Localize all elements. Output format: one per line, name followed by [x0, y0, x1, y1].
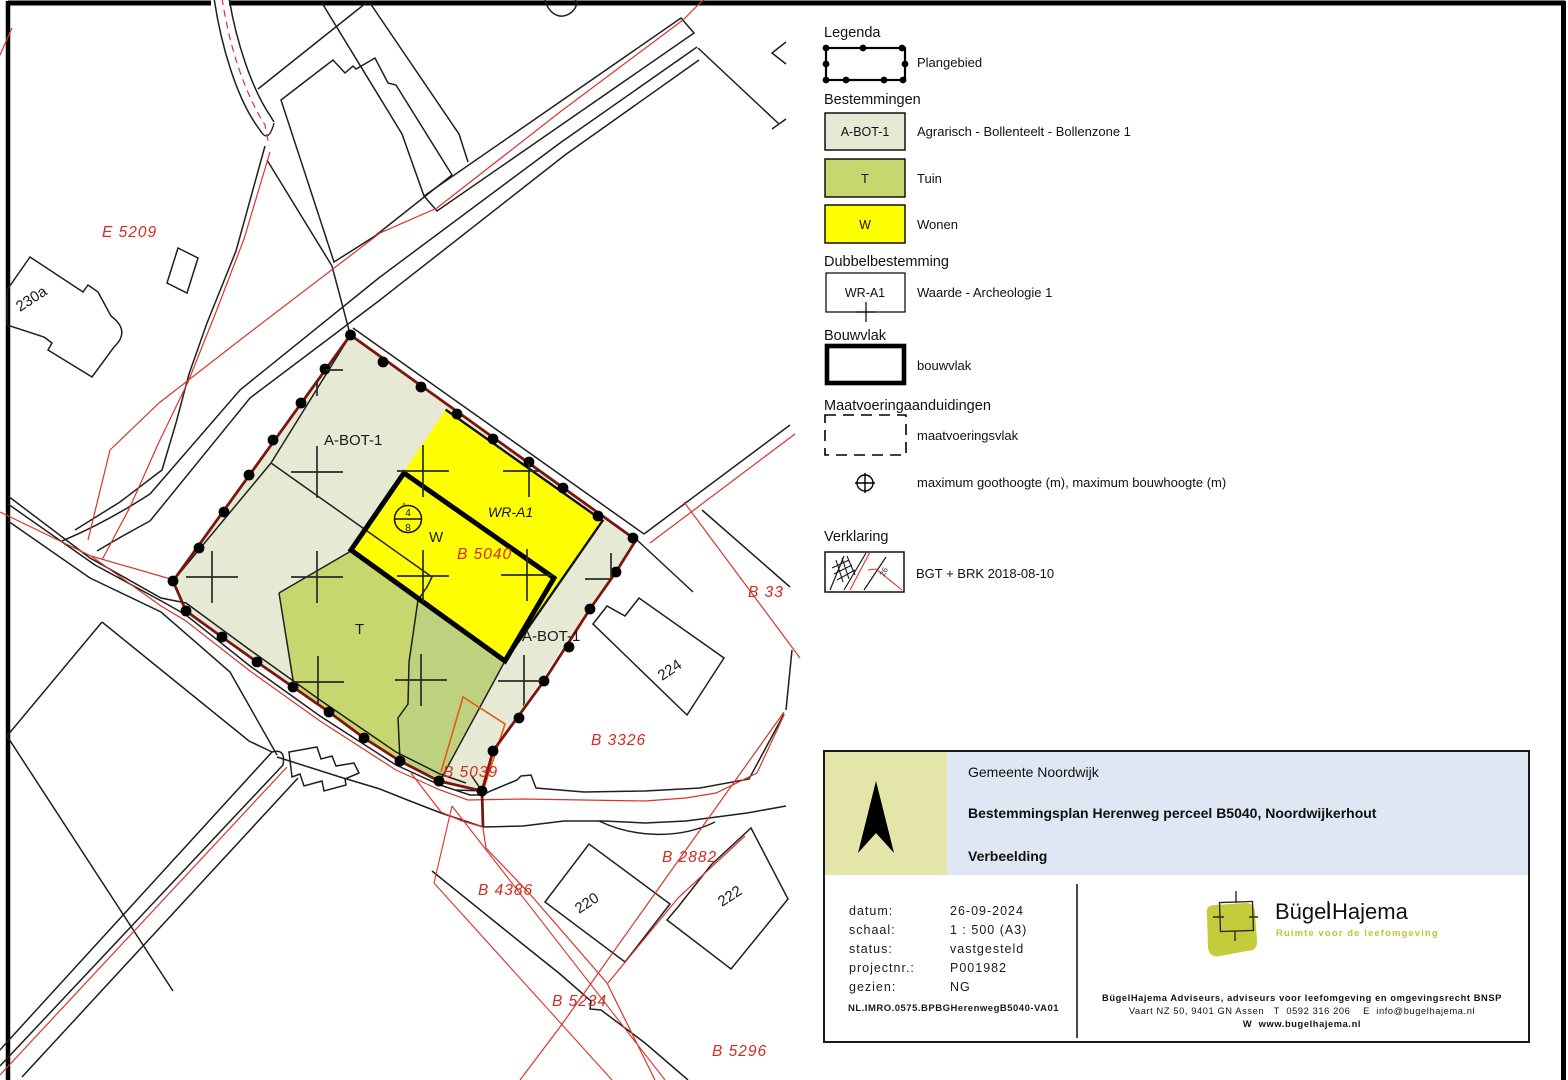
svg-text:B 5296: B 5296: [712, 1043, 767, 1060]
svg-text:Gemeente Noordwijk: Gemeente Noordwijk: [968, 764, 1100, 780]
svg-text:E 5209: E 5209: [102, 224, 157, 241]
svg-text:Legenda: Legenda: [824, 25, 881, 41]
svg-text:projectnr.:: projectnr.:: [849, 961, 915, 975]
svg-text:B 33: B 33: [748, 584, 784, 601]
svg-text:datum:: datum:: [849, 904, 893, 918]
svg-text:P001982: P001982: [950, 961, 1007, 975]
svg-text:Tuin: Tuin: [917, 171, 942, 186]
svg-text:Bestemmingen: Bestemmingen: [824, 92, 921, 108]
svg-text:4: 4: [405, 508, 411, 519]
svg-text:Bestemmingsplan Herenweg perce: Bestemmingsplan Herenweg perceel B5040, …: [968, 805, 1377, 821]
svg-text:NL.IMRO.0575.BPBGHerenwegB5040: NL.IMRO.0575.BPBGHerenwegB5040-VA01: [848, 1003, 1059, 1014]
svg-text:T: T: [355, 621, 364, 638]
svg-text:NG: NG: [950, 980, 971, 994]
svg-text:Agrarisch - Bollenteelt - Boll: Agrarisch - Bollenteelt - Bollenzone 1: [917, 124, 1131, 139]
svg-text:Plangebied: Plangebied: [917, 55, 982, 70]
svg-text:26-09-2024: 26-09-2024: [950, 904, 1024, 918]
svg-text:WR-A1: WR-A1: [488, 504, 533, 520]
svg-text:bouwvlak: bouwvlak: [917, 358, 972, 373]
svg-text:BGT + BRK 2018-08-10: BGT + BRK 2018-08-10: [916, 566, 1054, 581]
svg-text:1 : 500 (A3): 1 : 500 (A3): [950, 923, 1027, 937]
svg-text:Bügel: Bügel: [1275, 899, 1331, 924]
svg-text:Vaart NZ 50, 9401 GN Assen T: Vaart NZ 50, 9401 GN Assen T 0592 316 20…: [1129, 1006, 1475, 1016]
svg-text:A-BOT-1: A-BOT-1: [841, 125, 890, 139]
svg-text:Ruimte voor de leefomgeving: Ruimte voor de leefomgeving: [1276, 928, 1439, 939]
svg-text:BügelHajema Adviseurs, adviseu: BügelHajema Adviseurs, adviseurs voor le…: [1102, 993, 1502, 1003]
svg-text:Verklaring: Verklaring: [824, 529, 888, 545]
svg-text:Hajema: Hajema: [1332, 899, 1409, 924]
svg-text:B 3326: B 3326: [591, 732, 646, 749]
svg-text:B 5040: B 5040: [457, 546, 512, 563]
svg-text:B 2882: B 2882: [662, 849, 717, 866]
svg-text:Bouwvlak: Bouwvlak: [824, 328, 887, 344]
svg-text:A-BOT-1: A-BOT-1: [324, 432, 382, 449]
svg-text:maximum goothoogte (m), maximu: maximum goothoogte (m), maximum bouwhoog…: [917, 475, 1226, 490]
svg-text:schaal:: schaal:: [849, 923, 896, 937]
svg-text:B 5039: B 5039: [443, 764, 498, 781]
svg-text:W: W: [859, 218, 871, 232]
svg-text:8: 8: [405, 523, 411, 534]
svg-text:Waarde - Archeologie 1: Waarde - Archeologie 1: [917, 285, 1052, 300]
svg-text:Dubbelbestemming: Dubbelbestemming: [824, 254, 949, 270]
svg-text:Wonen: Wonen: [917, 217, 958, 232]
svg-text:W: W: [429, 529, 444, 546]
svg-text:Verbeelding: Verbeelding: [968, 848, 1047, 864]
svg-text:W www.bugelhajema.nl: W www.bugelhajema.nl: [1243, 1019, 1361, 1029]
svg-text:status:: status:: [849, 942, 893, 956]
svg-text:B 4386: B 4386: [478, 882, 533, 899]
svg-text:maatvoeringsvlak: maatvoeringsvlak: [917, 428, 1019, 443]
svg-text:A-BOT-1: A-BOT-1: [522, 628, 580, 645]
svg-text:Maatvoeringaanduidingen: Maatvoeringaanduidingen: [824, 398, 991, 414]
svg-text:vastgesteld: vastgesteld: [950, 942, 1024, 956]
svg-text:WR-A1: WR-A1: [845, 286, 885, 300]
svg-text:T: T: [861, 172, 869, 186]
svg-text:gezien:: gezien:: [849, 980, 896, 994]
svg-text:B 5234: B 5234: [552, 993, 607, 1010]
